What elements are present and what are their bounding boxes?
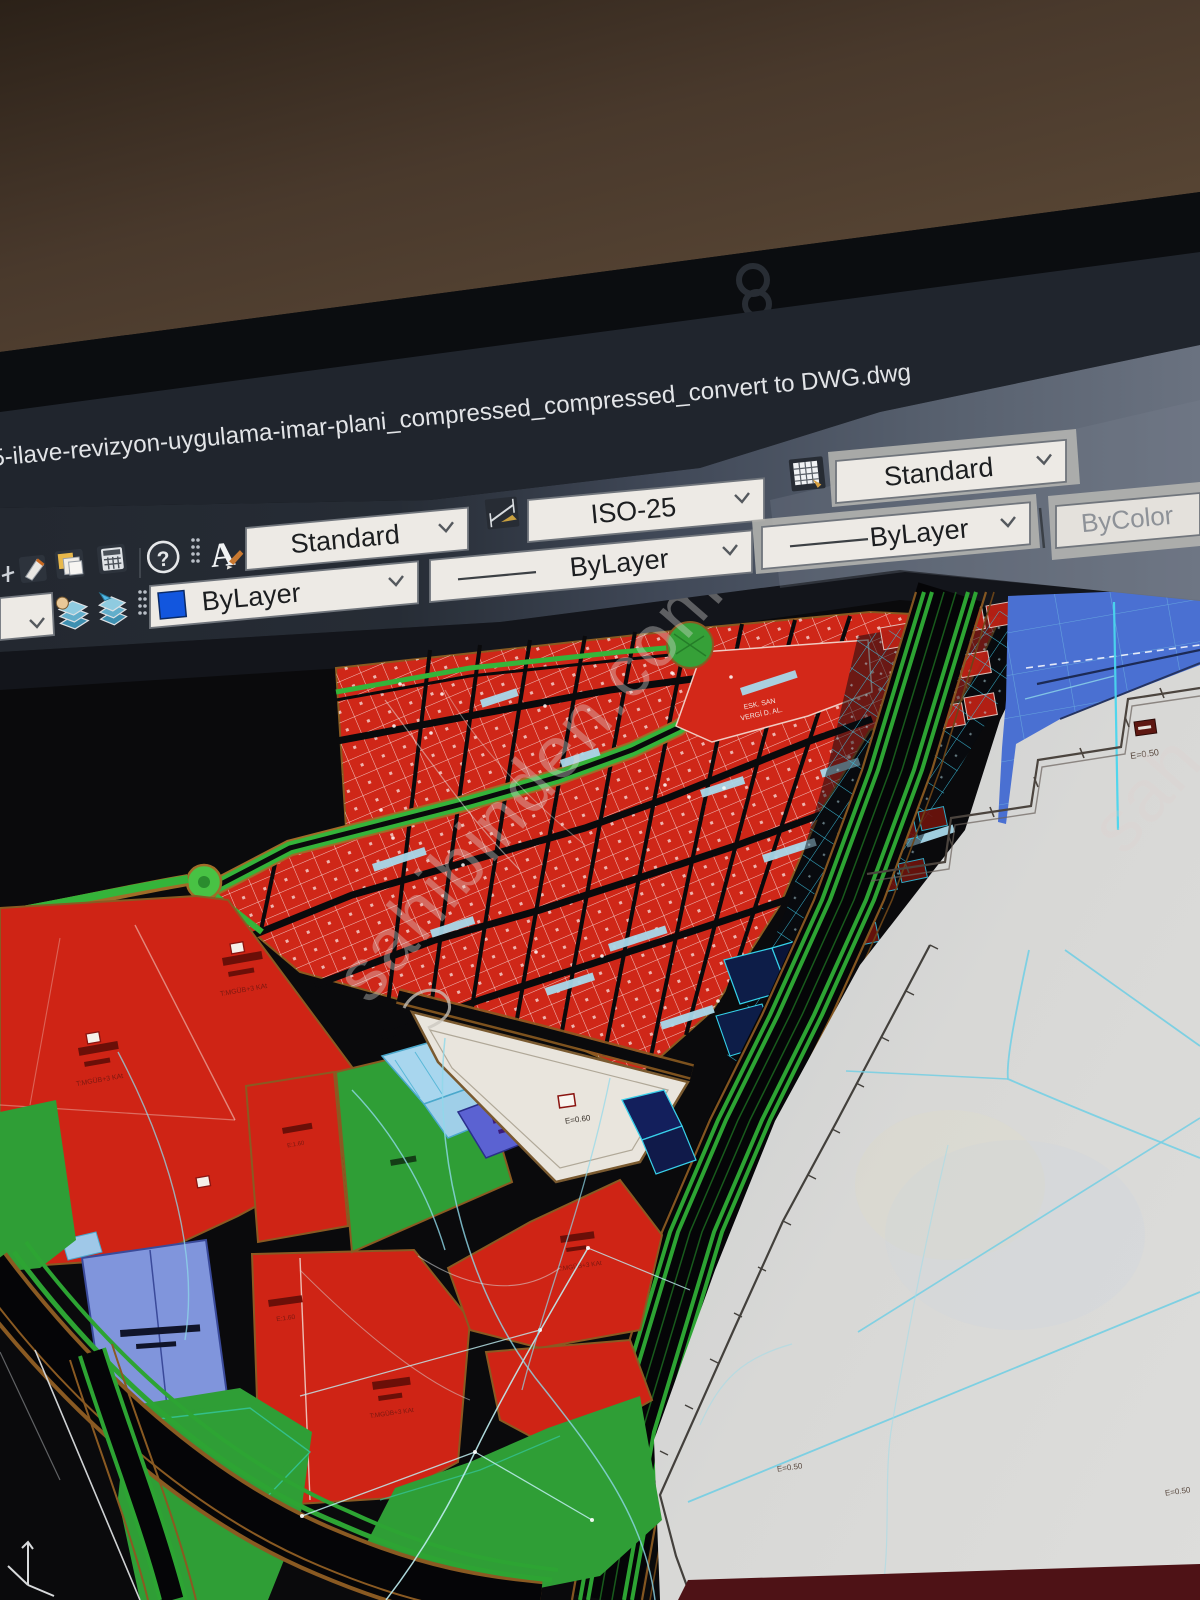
svg-text:?: ? (156, 547, 171, 571)
svg-text:A: A (208, 536, 237, 575)
